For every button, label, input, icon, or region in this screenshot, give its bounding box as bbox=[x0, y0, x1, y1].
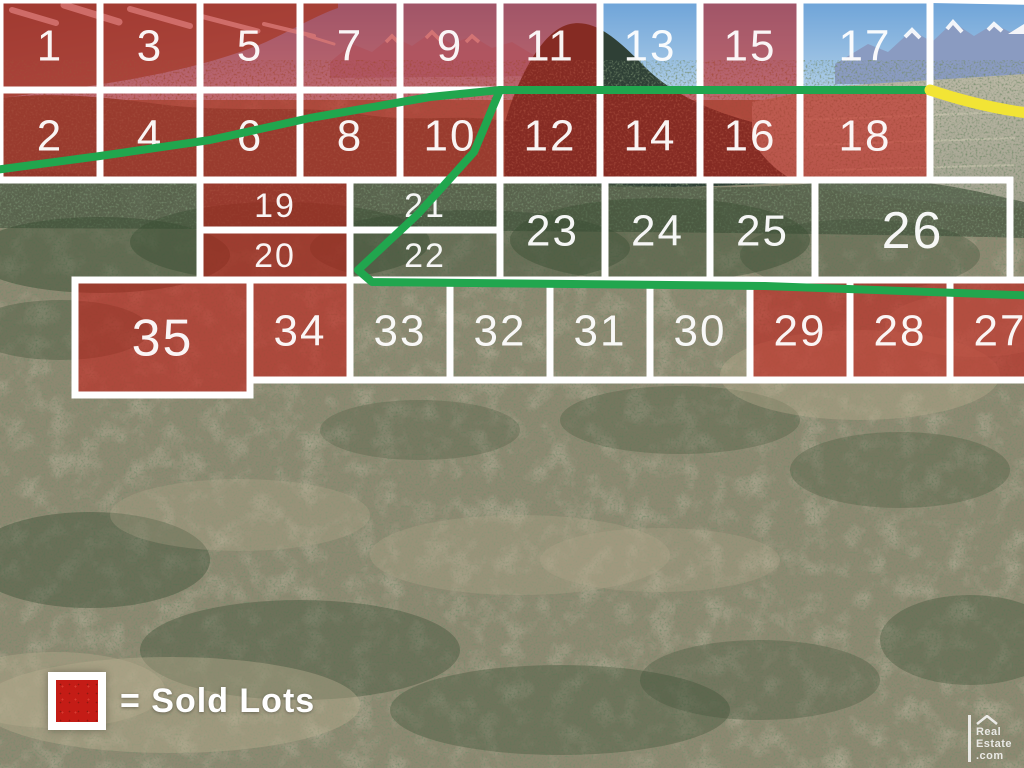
sold-lots-legend: = Sold Lots bbox=[48, 672, 315, 730]
logo-line: .com bbox=[976, 750, 1012, 762]
logo-line: Estate bbox=[976, 738, 1012, 750]
realestate-watermark: Real Estate .com bbox=[968, 715, 1012, 762]
aerial-plat-map: 1357911131517246810121416181920212223242… bbox=[0, 0, 1024, 768]
roof-icon bbox=[976, 715, 998, 725]
scrub-texture bbox=[0, 60, 1024, 768]
legend-label: = Sold Lots bbox=[120, 682, 315, 721]
logo-line: Real bbox=[976, 726, 1012, 738]
sold-lot-swatch bbox=[48, 672, 106, 730]
terrain-backdrop bbox=[0, 0, 1024, 768]
